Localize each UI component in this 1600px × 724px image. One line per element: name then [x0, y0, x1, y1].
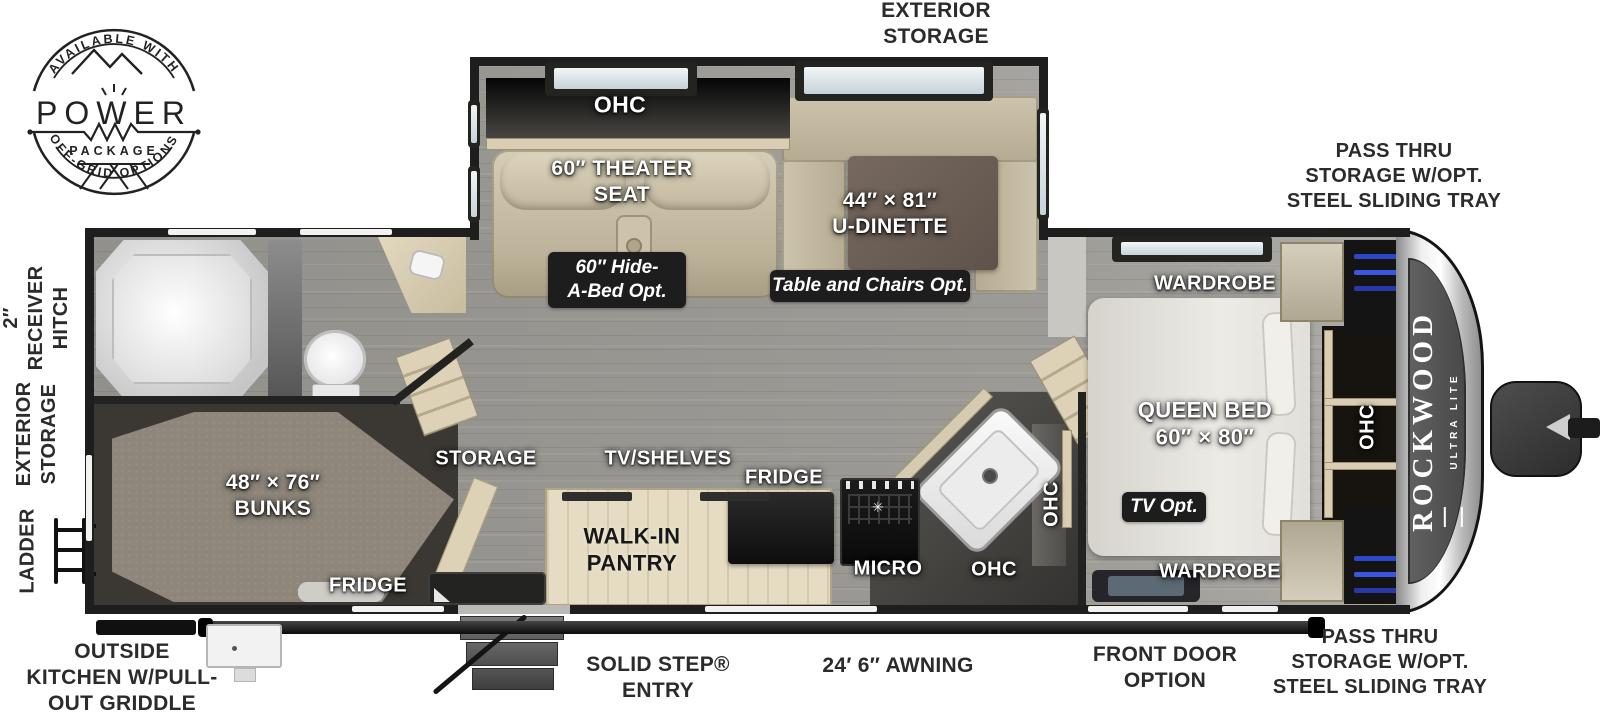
toilet — [304, 330, 366, 388]
awning-rail — [205, 621, 1322, 634]
label-walk-in-pantry: WALK-IN PANTRY — [584, 523, 681, 578]
wardrobe-cabinet-bottom — [1280, 520, 1344, 602]
line-dot-right — [195, 129, 200, 134]
label-ladder: LADDER — [16, 508, 41, 593]
bath-wall-bottom — [94, 396, 400, 404]
label-ohc-slide: OHC — [594, 91, 646, 120]
label-bunk-fridge: FRIDGE — [329, 574, 407, 599]
wall-top-left — [85, 228, 478, 237]
floorplan-diagram: AVAILABLE WITH OFF-GRID OPTIONS POWER PA… — [0, 0, 1600, 724]
logo-package-word: PACKAGE — [69, 144, 159, 158]
wall-left — [85, 228, 94, 614]
label-exterior-storage-side: EXTERIOR STORAGE — [12, 382, 62, 487]
window-slit — [352, 606, 444, 612]
label-u-dinette: 44″ × 81″ U-DINETTE — [832, 188, 948, 240]
slideout-window-left-top — [468, 100, 480, 148]
label-wardrobe-top: WARDROBE — [1154, 272, 1276, 297]
bedroom-window-top — [1112, 236, 1272, 262]
brand-name: ROCKWOOD — [1406, 310, 1442, 532]
window-slit — [300, 229, 392, 235]
label-front-door-option: FRONT DOOR OPTION — [1093, 642, 1237, 694]
griddle-box-dot — [232, 646, 237, 651]
label-ohc-kitchen-wall: OHC — [1040, 481, 1065, 527]
label-wardrobe-bottom: WARDROBE — [1159, 560, 1281, 585]
label-outside-kitchen: OUTSIDE KITCHEN W/PULL- OUT GRIDDLE — [26, 639, 217, 717]
sink-faucet — [984, 470, 996, 482]
hitch-jack — [1568, 418, 1600, 438]
line-dot-left — [27, 129, 32, 134]
label-theater-seat: 60″ THEATER SEAT — [551, 156, 692, 208]
label-bunks: 48″ × 76″ BUNKS — [226, 470, 320, 522]
sun-icon — [102, 84, 126, 95]
label-queen-bed: QUEEN BED 60″ × 80″ — [1138, 397, 1272, 452]
entry-door-opening — [458, 605, 570, 614]
passage-wall — [1048, 237, 1086, 337]
label-ohc-bedroom: OHC — [1356, 404, 1381, 450]
pantry-cabinet-slot-2 — [700, 492, 770, 501]
label-micro: MICRO — [854, 557, 923, 582]
label-receiver-hitch: 2″ RECEIVER HITCH — [0, 266, 73, 371]
label-ohc-kitchen: OHC — [971, 558, 1017, 583]
label-fridge: FRIDGE — [745, 466, 823, 491]
logo-arc-top-text: AVAILABLE WITH — [46, 32, 183, 77]
power-package-logo: AVAILABLE WITH OFF-GRID OPTIONS POWER PA… — [14, 12, 214, 212]
badge-tv-option: TV Opt. — [1122, 492, 1206, 522]
slideout-window-right — [1037, 108, 1049, 220]
brand-rule-right — [1461, 507, 1463, 527]
entry-step-3 — [472, 668, 554, 690]
pantry-cabinet-slot-1 — [562, 492, 632, 501]
label-pass-thru-bottom: PASS THRU STORAGE W/OPT. STEEL SLIDING T… — [1273, 625, 1487, 699]
dinette-bench-back — [782, 96, 1038, 162]
slideout-window-2 — [795, 61, 993, 101]
window-slit — [705, 606, 877, 612]
rockwood-branding: ROCKWOOD ULTRA LITE — [1406, 310, 1466, 532]
range-knob-strip — [846, 481, 914, 489]
label-pass-thru-top: PASS THRU STORAGE W/OPT. STEEL SLIDING T… — [1287, 139, 1501, 213]
brand-rule-left — [1444, 507, 1446, 527]
label-solid-step-entry: SOLID STEP® ENTRY — [586, 652, 730, 704]
window-slit — [1088, 606, 1188, 612]
mountains-icon — [72, 50, 142, 74]
slideout-window-left-bottom — [468, 166, 480, 222]
wardrobe-cabinet-top — [1280, 242, 1344, 322]
badge-table-chairs-option: Table and Chairs Opt. — [770, 270, 970, 302]
label-exterior-storage-top: EXTERIOR STORAGE — [881, 0, 991, 50]
griddle-box-tab — [234, 668, 256, 682]
window-slit — [1222, 606, 1278, 612]
label-storage: STORAGE — [435, 447, 536, 472]
label-tv-shelves: TV/SHELVES — [605, 447, 732, 472]
window-slit-left-wall — [86, 455, 92, 541]
bedroom-wall-left — [1078, 392, 1086, 605]
badge-hide-a-bed-option: 60″ Hide- A-Bed Opt. — [548, 252, 686, 308]
rear-bumper — [96, 620, 196, 635]
bed-ohc-shelf-left — [1324, 330, 1333, 518]
kitchen-fridge — [728, 492, 834, 564]
brand-trim: ULTRA LITE — [1444, 310, 1463, 532]
range-burner-star: ✳ — [872, 500, 886, 514]
shower-door-panel — [268, 240, 302, 400]
shower-inner — [112, 254, 252, 384]
window-slit — [168, 229, 256, 235]
slide-ohc-shelf — [486, 138, 790, 150]
label-awning: 24′ 6″ AWNING — [822, 653, 973, 679]
outside-kitchen-highlight — [434, 588, 450, 602]
